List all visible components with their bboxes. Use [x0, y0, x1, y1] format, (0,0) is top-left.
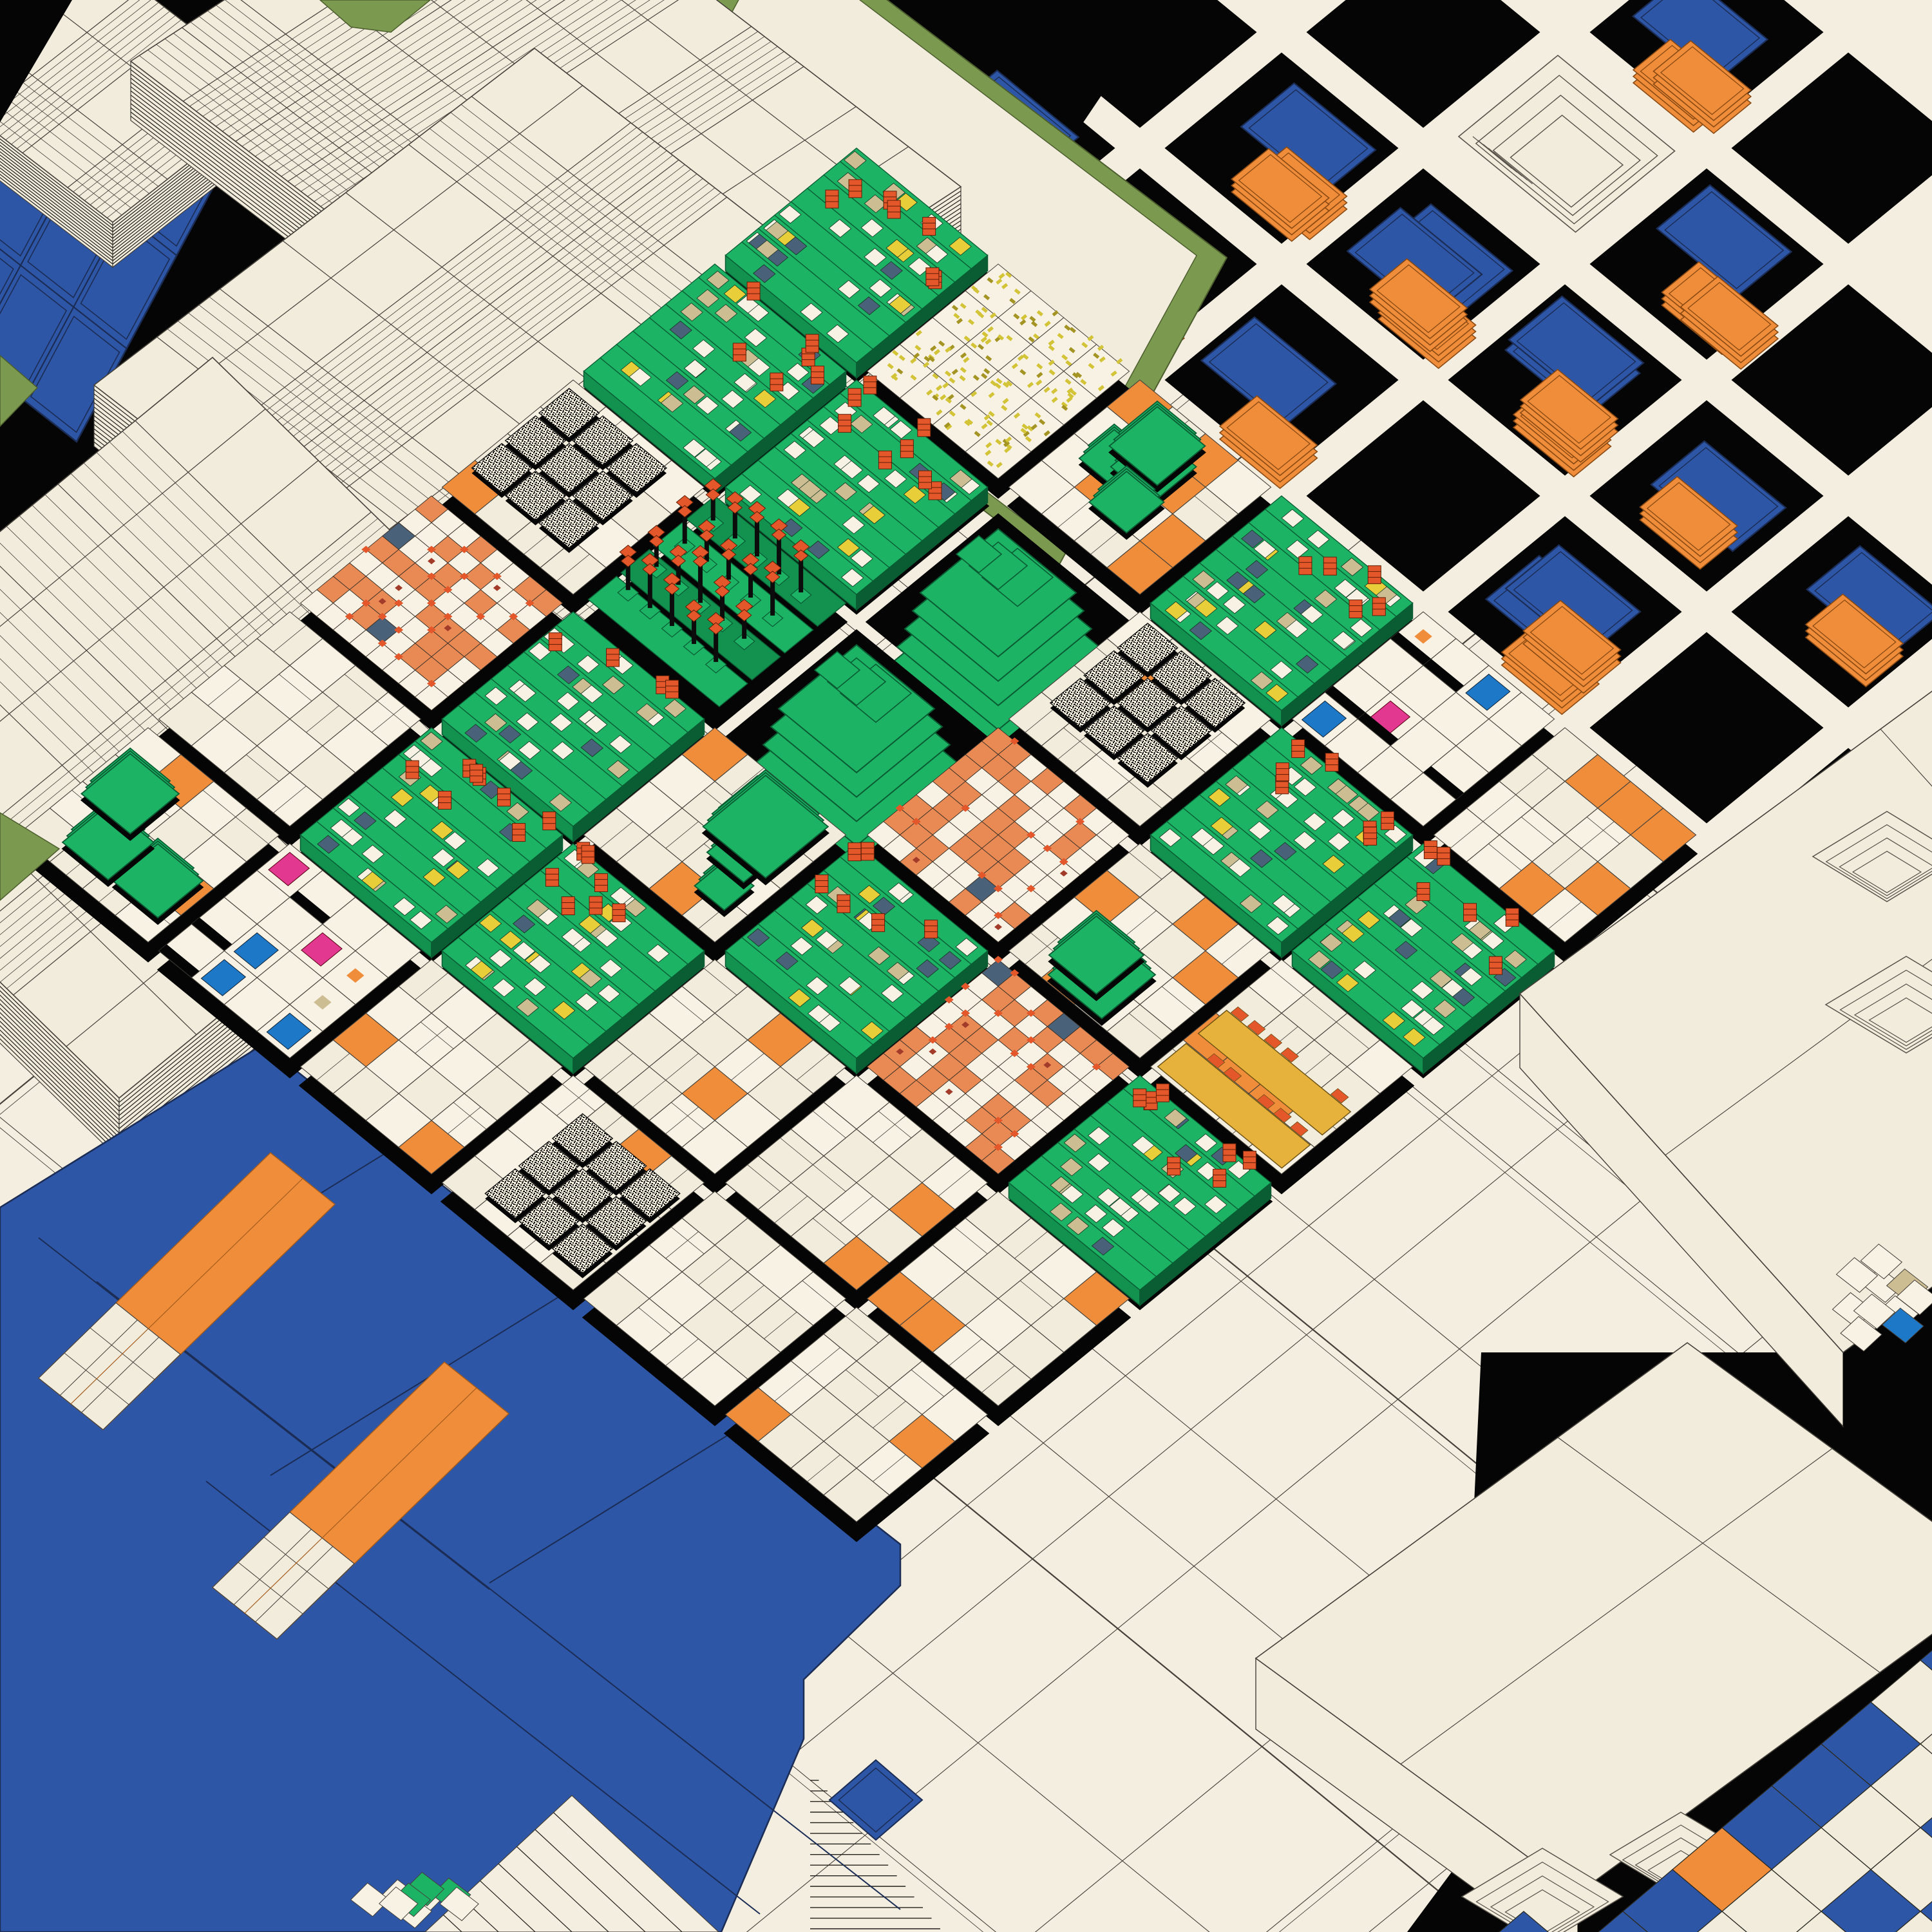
artwork-canvas [0, 0, 1932, 1932]
generative-isometric-artwork [0, 0, 1932, 1932]
